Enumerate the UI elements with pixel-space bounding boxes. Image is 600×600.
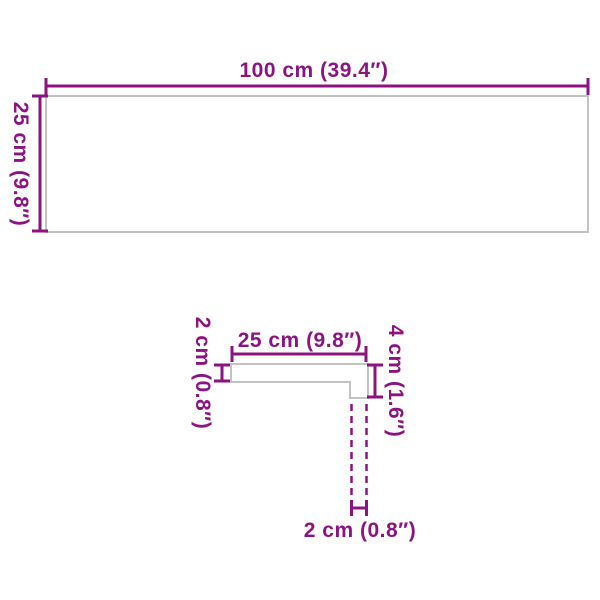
- board-outline: [46, 96, 588, 232]
- dimension-diagram: 100 cm (39.4″) 25 cm (9.8″) 25 cm (9.8″)…: [0, 0, 600, 600]
- profile-section-figure: 25 cm (9.8″) 2 cm (0.8″) 4 cm (1.6″) 2 c…: [191, 317, 416, 542]
- board-front-figure: 100 cm (39.4″) 25 cm (9.8″): [9, 59, 589, 232]
- height-dim-label: 25 cm (9.8″): [9, 102, 32, 227]
- diagram-canvas: 100 cm (39.4″) 25 cm (9.8″) 25 cm (9.8″)…: [0, 0, 600, 600]
- profile-outline: [231, 364, 368, 398]
- width-dim-label: 100 cm (39.4″): [240, 59, 389, 82]
- profile-right-label: 4 cm (1.6″): [384, 325, 407, 437]
- profile-bottom-label: 2 cm (0.8″): [304, 519, 416, 542]
- profile-width-label: 25 cm (9.8″): [238, 329, 363, 352]
- profile-left-label: 2 cm (0.8″): [191, 317, 214, 429]
